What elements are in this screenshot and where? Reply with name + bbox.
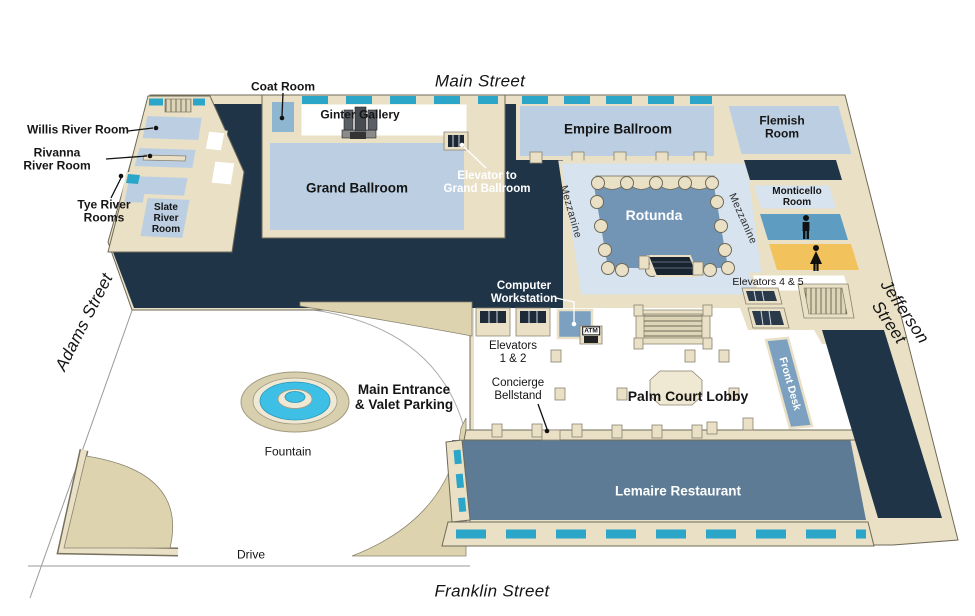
lobby-stairs-icon [634, 305, 712, 349]
bellstand-desk [542, 430, 560, 440]
corner-garden [62, 450, 178, 552]
grand-ballroom-block [262, 95, 505, 238]
slate-river-room-floor [138, 196, 192, 240]
lemaire-floor [452, 438, 866, 520]
organ-icon [342, 107, 377, 139]
atm-kiosk [580, 326, 602, 344]
ginter-gallery-floor [300, 103, 468, 137]
floor-plan-canvas [0, 0, 975, 616]
statue-base [650, 371, 702, 405]
wing-stairs-icon [165, 99, 191, 112]
stairs-icon-right [798, 284, 854, 318]
flemish-room-floor [726, 104, 854, 156]
monticello-room-floor [752, 184, 838, 210]
fountain-icon [241, 372, 349, 432]
grand-ballroom-floor [268, 141, 466, 232]
floor-plan-map: Main Street Franklin Street Adams Street… [0, 0, 975, 616]
elevator-4-icon [742, 288, 782, 304]
tye-window [126, 174, 140, 184]
empire-ballroom-floor [518, 104, 716, 158]
elevator-5-icon [748, 308, 789, 328]
canopy-walkway [300, 302, 472, 336]
